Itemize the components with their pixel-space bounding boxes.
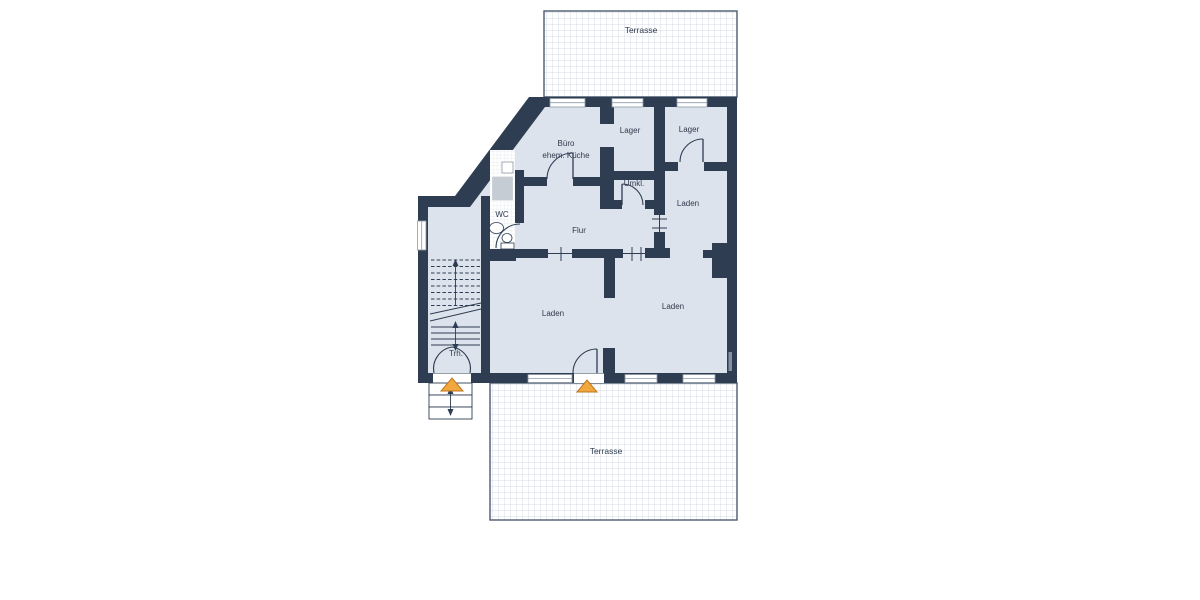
floorplan-canvas: Terrasse Terrasse (0, 0, 1200, 600)
terrace-top: Terrasse (544, 11, 737, 97)
room-label-lager-right: Lager (679, 125, 700, 134)
room-label-wc: WC (495, 210, 509, 219)
chimney-shaft (502, 162, 513, 173)
entrance-door-gap (574, 374, 604, 384)
toilet-tank (501, 243, 514, 249)
terrace-top-label: Terrasse (625, 25, 658, 35)
wall-entrance-stub (603, 348, 615, 374)
room-label-lager-left: Lager (620, 126, 641, 135)
wall-laden-divider-stub (604, 258, 615, 298)
wall-pillar-stub (703, 250, 712, 258)
terrace-bottom: Terrasse (490, 383, 737, 520)
room-label-buero-1: Büro (558, 139, 575, 148)
wall-flur-laden-b (572, 249, 623, 258)
wall-buero-lager-lower (600, 147, 614, 209)
room-label-buero-2: ehem. Küche (542, 151, 590, 160)
room-label-laden-upper: Laden (677, 199, 699, 208)
room-label-umkleide: Umkl. (624, 179, 644, 188)
watermark (729, 352, 733, 371)
washbasin (490, 223, 504, 234)
wall-pillar (712, 243, 727, 278)
wall-buero-bottom-left (512, 177, 547, 186)
wall-flur-laden-a (516, 249, 548, 258)
room-label-flur: Flur (572, 226, 586, 235)
wall-lagerright-bottom-right (704, 162, 727, 171)
floorplan-page: Terrasse Terrasse (0, 0, 1200, 600)
wall-buero-bottom-right (573, 177, 604, 186)
wall-lager-divider (654, 104, 665, 215)
terrace-top-area (544, 11, 737, 97)
building (418, 97, 737, 383)
wall-t-junction (645, 248, 670, 258)
shower (492, 176, 514, 201)
wall-lagerright-bottom-left (664, 162, 678, 171)
room-label-treppenhaus: Trh. (449, 349, 463, 358)
wall-umkl-bottom-left (600, 200, 622, 209)
room-label-laden-lower-right: Laden (662, 302, 684, 311)
terrace-bottom-label: Terrasse (590, 446, 623, 456)
room-label-laden-lower-left: Laden (542, 309, 564, 318)
toilet-bowl (502, 234, 512, 243)
wall-stairwell-right (481, 196, 490, 376)
wall-wc-bottom (483, 249, 516, 261)
